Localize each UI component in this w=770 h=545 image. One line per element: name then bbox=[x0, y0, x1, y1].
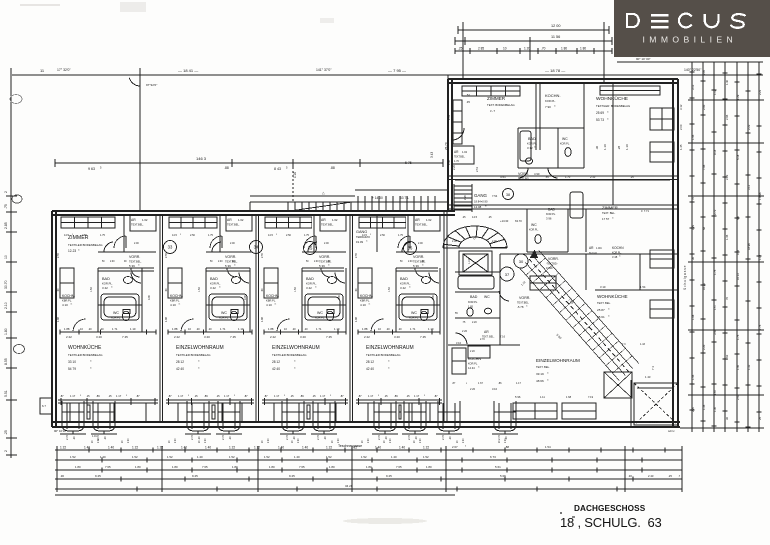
svg-text:1 17: 1 17 bbox=[178, 394, 184, 398]
svg-text:70: 70 bbox=[725, 297, 729, 300]
svg-text:1.80: 1.80 bbox=[4, 328, 8, 335]
svg-text:7 65: 7 65 bbox=[202, 465, 208, 469]
svg-text:.20: .20 bbox=[398, 327, 402, 331]
svg-text:KOR.PL.: KOR.PL. bbox=[102, 282, 113, 286]
svg-text:KOR.PL.: KOR.PL. bbox=[527, 142, 538, 146]
svg-text:5 39: 5 39 bbox=[413, 264, 419, 268]
svg-text:1 80: 1 80 bbox=[366, 465, 372, 469]
svg-text:2.55: 2.55 bbox=[165, 253, 168, 258]
svg-text:1 52: 1 52 bbox=[361, 455, 367, 459]
svg-text:58: 58 bbox=[702, 227, 706, 230]
svg-text:BAD: BAD bbox=[306, 277, 314, 281]
svg-text:.87: .87 bbox=[136, 394, 140, 398]
svg-text:1 40: 1 40 bbox=[375, 446, 381, 450]
svg-text:.20: .20 bbox=[72, 436, 76, 440]
svg-text:AR: AR bbox=[227, 218, 232, 222]
svg-text:.20: .20 bbox=[386, 327, 390, 331]
svg-text:1.43: 1.43 bbox=[640, 343, 645, 346]
svg-text:VORR.: VORR. bbox=[319, 255, 330, 259]
svg-text:2.00: 2.00 bbox=[314, 261, 319, 263]
svg-text:9.14: 9.14 bbox=[736, 249, 740, 255]
svg-text:EINZELWOHNRAUM: EINZELWOHNRAUM bbox=[536, 358, 580, 363]
svg-text:TEXT.BEL.: TEXT.BEL. bbox=[415, 223, 428, 227]
svg-text:.15: .15 bbox=[108, 394, 112, 398]
svg-text:1 40: 1 40 bbox=[302, 446, 308, 450]
svg-text:.70: .70 bbox=[541, 47, 546, 51]
svg-text:TEXTILER BODENBELAG: TEXTILER BODENBELAG bbox=[366, 353, 401, 357]
svg-text:2.00: 2.00 bbox=[418, 242, 423, 245]
svg-text:TEXT.BEL.: TEXT.BEL. bbox=[131, 223, 144, 227]
svg-text:2.70: 2.70 bbox=[190, 434, 194, 440]
svg-text:1.75: 1.75 bbox=[736, 334, 740, 340]
svg-text:25 69: 25 69 bbox=[596, 111, 604, 115]
svg-text:5.18: 5.18 bbox=[736, 154, 740, 160]
svg-text:7.19: 7.19 bbox=[588, 395, 594, 399]
svg-text:BAD: BAD bbox=[102, 277, 110, 281]
svg-text:3 20: 3 20 bbox=[300, 335, 306, 339]
svg-text:4 10: 4 10 bbox=[266, 303, 272, 307]
svg-text:1 40: 1 40 bbox=[391, 455, 397, 459]
svg-text:1.88: 1.88 bbox=[57, 317, 60, 322]
svg-text:+13.30: +13.30 bbox=[500, 219, 509, 223]
svg-text:.15: .15 bbox=[312, 394, 316, 398]
svg-text:.15: .15 bbox=[216, 394, 220, 398]
svg-text:8.55: 8.55 bbox=[4, 358, 8, 365]
svg-text:1.17: 1.17 bbox=[516, 382, 521, 385]
svg-text:2.00: 2.00 bbox=[324, 242, 329, 245]
svg-text:1 40: 1 40 bbox=[205, 446, 211, 450]
svg-text:18.84×0.90: 18.84×0.90 bbox=[474, 200, 488, 204]
svg-text:.90: .90 bbox=[261, 288, 264, 292]
svg-text:.20: .20 bbox=[292, 436, 296, 440]
svg-text:WC: WC bbox=[317, 311, 323, 315]
svg-text:97°32'0'': 97°32'0'' bbox=[146, 83, 158, 87]
svg-text:2.20: 2.20 bbox=[472, 321, 477, 324]
svg-text:BAD: BAD bbox=[470, 295, 478, 299]
svg-text:— 7 95 —: — 7 95 — bbox=[388, 68, 406, 73]
svg-text:1.45: 1.45 bbox=[736, 364, 740, 370]
svg-text:1 67: 1 67 bbox=[478, 382, 483, 385]
svg-text:2.00: 2.00 bbox=[408, 261, 413, 263]
svg-text:WC: WC bbox=[113, 311, 119, 315]
svg-text:.25: .25 bbox=[630, 175, 634, 179]
svg-text:.86: .86 bbox=[96, 394, 100, 398]
svg-text:2.70: 2.70 bbox=[441, 434, 445, 440]
svg-text:1 22: 1 22 bbox=[254, 446, 260, 450]
svg-text:1 40: 1 40 bbox=[84, 446, 90, 450]
svg-text:AR: AR bbox=[321, 218, 326, 222]
svg-text:.86: .86 bbox=[300, 394, 304, 398]
svg-text:.25: .25 bbox=[488, 216, 492, 219]
svg-text:3 42: 3 42 bbox=[102, 286, 108, 290]
svg-text:1.67: 1.67 bbox=[713, 389, 717, 395]
svg-text:.30: .30 bbox=[628, 474, 632, 478]
svg-text:2: 2 bbox=[4, 450, 8, 452]
svg-text:10.23: 10.23 bbox=[702, 283, 706, 290]
svg-text:33 10: 33 10 bbox=[68, 360, 76, 364]
svg-text:.86: .86 bbox=[204, 394, 208, 398]
svg-text:18 , SCHULG. 63: 18 , SCHULG. 63 bbox=[560, 515, 662, 530]
svg-text:1 22: 1 22 bbox=[423, 446, 429, 450]
svg-text:1 40: 1 40 bbox=[181, 446, 187, 450]
svg-text:30: 30 bbox=[691, 257, 695, 260]
svg-text:4 10: 4 10 bbox=[170, 303, 176, 307]
svg-text:KOR.PL.: KOR.PL. bbox=[529, 229, 539, 232]
svg-text:2.55: 2.55 bbox=[261, 253, 264, 258]
svg-text:3 43: 3 43 bbox=[430, 152, 434, 158]
svg-text:7 45: 7 45 bbox=[326, 335, 332, 339]
svg-text:wrtr'ur: wrtr'ur bbox=[668, 430, 675, 433]
svg-text:BAD: BAD bbox=[210, 277, 218, 281]
svg-text:.25: .25 bbox=[4, 430, 8, 435]
svg-text:TEXT. BEL.: TEXT. BEL. bbox=[597, 301, 611, 305]
svg-text:.15: .15 bbox=[194, 394, 198, 398]
svg-text:1.50: 1.50 bbox=[198, 287, 201, 292]
svg-text:BAD: BAD bbox=[548, 208, 556, 212]
svg-text:6.7: 6.7 bbox=[42, 404, 46, 408]
svg-text:1 40: 1 40 bbox=[108, 446, 114, 450]
svg-text:2.10: 2.10 bbox=[4, 302, 8, 309]
svg-text:1 22: 1 22 bbox=[132, 446, 138, 450]
svg-text:1 71: 1 71 bbox=[316, 327, 322, 331]
svg-text:2.20: 2.20 bbox=[452, 164, 456, 170]
svg-text:42 40: 42 40 bbox=[272, 367, 280, 371]
svg-text:AR: AR bbox=[589, 246, 594, 250]
svg-text:1.62: 1.62 bbox=[332, 218, 338, 222]
svg-text:5: 5 bbox=[276, 234, 277, 236]
svg-text:3.12: 3.12 bbox=[747, 184, 751, 190]
svg-text:2.00: 2.00 bbox=[230, 242, 235, 245]
svg-text:1 88: 1 88 bbox=[362, 327, 368, 331]
svg-text:AR: AR bbox=[415, 218, 420, 222]
svg-text:1.88: 1.88 bbox=[261, 317, 264, 322]
svg-text:2.23: 2.23 bbox=[747, 124, 751, 130]
svg-text:TEXT.BEL.: TEXT.BEL. bbox=[321, 223, 334, 227]
svg-text:KOCHN.: KOCHN. bbox=[266, 294, 279, 298]
svg-text:2.70: 2.70 bbox=[221, 434, 225, 440]
svg-text:1.45: 1.45 bbox=[691, 134, 695, 140]
svg-text:1 88: 1 88 bbox=[268, 327, 274, 331]
svg-text:+ 14.30: + 14.30 bbox=[372, 196, 383, 200]
svg-text:1 52: 1 52 bbox=[167, 455, 173, 459]
svg-text:42 40: 42 40 bbox=[176, 367, 184, 371]
svg-text:2.20: 2.20 bbox=[420, 438, 422, 443]
svg-text:4.90: 4.90 bbox=[432, 295, 435, 300]
svg-text:1 22: 1 22 bbox=[326, 446, 332, 450]
svg-text:63 7 L: 63 7 L bbox=[400, 196, 409, 200]
svg-text:140° 22'50'': 140° 22'50'' bbox=[684, 68, 702, 72]
svg-text:4.90: 4.90 bbox=[148, 295, 151, 300]
svg-text:30: 30 bbox=[519, 259, 524, 264]
svg-text:2.00: 2.00 bbox=[679, 124, 683, 130]
svg-text:7.95: 7.95 bbox=[702, 164, 706, 170]
svg-text:.88: .88 bbox=[505, 445, 509, 449]
svg-text:1 54: 1 54 bbox=[640, 285, 646, 289]
svg-text:¼ 7: ¼ 7 bbox=[490, 109, 495, 113]
svg-text:1 17: 1 17 bbox=[116, 394, 122, 398]
svg-text:1.11: 1.11 bbox=[540, 395, 545, 399]
svg-text:2.00: 2.00 bbox=[134, 242, 139, 245]
svg-text:2.20: 2.20 bbox=[338, 438, 340, 443]
svg-text:2.55: 2.55 bbox=[57, 253, 60, 258]
svg-text:12 00: 12 00 bbox=[551, 24, 561, 28]
svg-text:2.20: 2.20 bbox=[691, 406, 695, 412]
svg-text:KOCHN.: KOCHN. bbox=[360, 294, 373, 298]
svg-text:2.00: 2.00 bbox=[452, 240, 457, 243]
svg-text:VORR.: VORR. bbox=[413, 255, 424, 259]
svg-text:1.50: 1.50 bbox=[294, 287, 297, 292]
svg-text:1 88: 1 88 bbox=[172, 327, 178, 331]
svg-text:.87: .87 bbox=[244, 394, 248, 398]
svg-text:146 3: 146 3 bbox=[196, 156, 207, 161]
svg-text:1 10: 1 10 bbox=[130, 327, 136, 331]
svg-text:1 80: 1 80 bbox=[580, 47, 586, 51]
svg-text:3 42: 3 42 bbox=[306, 286, 312, 290]
svg-text:2.51: 2.51 bbox=[475, 166, 479, 172]
svg-text:KBR.PL.: KBR.PL. bbox=[266, 299, 276, 303]
svg-text:KBR.PL.: KBR.PL. bbox=[170, 299, 180, 303]
svg-text:1.35: 1.35 bbox=[702, 404, 706, 410]
svg-text:7.54: 7.54 bbox=[492, 194, 498, 198]
svg-text:9 25: 9 25 bbox=[289, 474, 295, 478]
svg-text:.90: .90 bbox=[165, 288, 168, 292]
svg-text:KOCHN.: KOCHN. bbox=[545, 93, 561, 98]
svg-text:1.45: 1.45 bbox=[448, 160, 451, 165]
svg-text:.25: .25 bbox=[458, 47, 463, 51]
svg-text:7.16: 7.16 bbox=[500, 335, 506, 339]
svg-text:25 87: 25 87 bbox=[597, 308, 605, 312]
svg-text:3 20: 3 20 bbox=[204, 335, 210, 339]
svg-text:.88: .88 bbox=[330, 166, 335, 170]
svg-text:2 20: 2 20 bbox=[470, 387, 476, 391]
svg-text:.87: .87 bbox=[168, 394, 172, 398]
svg-text:1 52: 1 52 bbox=[326, 455, 332, 459]
svg-text:1 20: 1 20 bbox=[524, 47, 530, 51]
svg-text:2.20: 2.20 bbox=[390, 438, 392, 443]
svg-text:7 3: 7 3 bbox=[651, 366, 655, 370]
svg-text:.30: .30 bbox=[60, 474, 64, 478]
svg-text:1 80: 1 80 bbox=[75, 465, 81, 469]
svg-text:4.90: 4.90 bbox=[338, 295, 341, 300]
svg-text:1 40: 1 40 bbox=[399, 446, 405, 450]
svg-text:.88: .88 bbox=[224, 166, 229, 170]
svg-text:1 22: 1 22 bbox=[157, 446, 163, 450]
svg-text:3.12: 3.12 bbox=[679, 104, 683, 110]
svg-text:30.70: 30.70 bbox=[4, 280, 8, 289]
svg-text:5 06: 5 06 bbox=[500, 474, 506, 478]
svg-text:S c h u l g a s s e: S c h u l g a s s e bbox=[683, 265, 687, 290]
svg-text:1 68: 1 68 bbox=[566, 395, 572, 399]
svg-text:KOCHN: KOCHN bbox=[612, 246, 624, 250]
svg-text:14.34: 14.34 bbox=[468, 366, 475, 370]
svg-text:AR: AR bbox=[454, 150, 459, 154]
svg-text:1 43: 1 43 bbox=[645, 375, 651, 379]
svg-text:90° 10' 00'': 90° 10' 00'' bbox=[636, 57, 651, 61]
svg-text:1.50: 1.50 bbox=[90, 287, 93, 292]
svg-text:1.88: 1.88 bbox=[355, 317, 358, 322]
svg-text:EINZELWOHNRAUM: EINZELWOHNRAUM bbox=[272, 345, 320, 351]
svg-text:2.20: 2.20 bbox=[175, 438, 177, 443]
svg-text:TEXT. BEL.: TEXT. BEL. bbox=[602, 211, 616, 215]
svg-text:9 25: 9 25 bbox=[192, 474, 198, 478]
svg-text:2.70: 2.70 bbox=[377, 434, 381, 440]
svg-text:1 71: 1 71 bbox=[112, 327, 118, 331]
svg-text:1 52: 1 52 bbox=[264, 455, 270, 459]
svg-text:1 22: 1 22 bbox=[351, 446, 357, 450]
svg-text:1 80: 1 80 bbox=[269, 465, 275, 469]
svg-text:1 10: 1 10 bbox=[334, 327, 340, 331]
svg-text:2.20: 2.20 bbox=[464, 195, 467, 200]
svg-text:1.12: 1.12 bbox=[713, 89, 717, 95]
svg-text:5 61: 5 61 bbox=[495, 465, 501, 469]
svg-text:4.90: 4.90 bbox=[244, 295, 247, 300]
svg-text:4 10: 4 10 bbox=[360, 303, 366, 307]
svg-text:14.5: 14.5 bbox=[64, 234, 69, 237]
svg-text:7 65: 7 65 bbox=[105, 465, 111, 469]
svg-text:1.75: 1.75 bbox=[713, 269, 717, 275]
svg-text:7 45: 7 45 bbox=[122, 335, 128, 339]
svg-text:1.62: 1.62 bbox=[238, 218, 244, 222]
svg-text:3 20: 3 20 bbox=[96, 335, 102, 339]
svg-text:37: 37 bbox=[505, 272, 510, 277]
svg-text:1 80: 1 80 bbox=[232, 465, 238, 469]
svg-text:1 40: 1 40 bbox=[278, 446, 284, 450]
svg-text:VORR.: VORR. bbox=[548, 257, 559, 261]
svg-text:WOHNKÜCHE: WOHNKÜCHE bbox=[68, 344, 102, 351]
svg-text:1.88: 1.88 bbox=[165, 317, 168, 322]
svg-text:5 39: 5 39 bbox=[225, 264, 231, 268]
svg-text:1 22: 1 22 bbox=[229, 446, 235, 450]
svg-text:TEXT. BEL.: TEXT. BEL. bbox=[536, 365, 550, 369]
svg-text:.35: .35 bbox=[466, 100, 470, 104]
svg-text:TEXTILER BODENBELAG: TEXTILER BODENBELAG bbox=[272, 353, 307, 357]
svg-text:1.70: 1.70 bbox=[565, 175, 571, 179]
svg-text:1.62: 1.62 bbox=[426, 218, 432, 222]
svg-text:7 45: 7 45 bbox=[420, 335, 426, 339]
svg-text:2.70: 2.70 bbox=[480, 338, 485, 341]
svg-text:7 65: 7 65 bbox=[396, 465, 402, 469]
svg-text:WC: WC bbox=[221, 311, 227, 315]
svg-text:2.50: 2.50 bbox=[380, 234, 385, 237]
svg-text:WC: WC bbox=[411, 311, 417, 315]
svg-text:KOCHN.: KOCHN. bbox=[62, 294, 75, 298]
svg-text:1 17: 1 17 bbox=[414, 394, 420, 398]
svg-text:28 12: 28 12 bbox=[366, 360, 374, 364]
svg-text:VORR.: VORR. bbox=[225, 255, 236, 259]
svg-text:1.01: 1.01 bbox=[92, 435, 97, 438]
svg-text:9 25: 9 25 bbox=[386, 474, 392, 478]
svg-text:1.08: 1.08 bbox=[691, 314, 695, 320]
svg-text:6 73: 6 73 bbox=[490, 455, 496, 459]
svg-text:8 43: 8 43 bbox=[274, 167, 281, 171]
svg-text:TEXTILER BODENBELAG: TEXTILER BODENBELAG bbox=[68, 353, 103, 357]
svg-text:.20: .20 bbox=[448, 436, 452, 440]
svg-text:3 42: 3 42 bbox=[400, 286, 406, 290]
svg-text:3 20: 3 20 bbox=[394, 335, 400, 339]
svg-text:VORR.: VORR. bbox=[519, 296, 530, 300]
svg-text:3 48: 3 48 bbox=[612, 255, 618, 259]
svg-text:.86: .86 bbox=[498, 382, 502, 385]
svg-text:AR: AR bbox=[131, 218, 136, 222]
svg-text:1.45: 1.45 bbox=[691, 374, 695, 380]
svg-text:14.5: 14.5 bbox=[172, 234, 177, 237]
svg-text:2.95: 2.95 bbox=[702, 69, 706, 75]
svg-text:1.50: 1.50 bbox=[388, 287, 391, 292]
svg-text:BAD: BAD bbox=[528, 137, 536, 141]
svg-text:1 17: 1 17 bbox=[70, 394, 76, 398]
svg-text:.20: .20 bbox=[414, 436, 418, 440]
svg-text:2.20: 2.20 bbox=[128, 438, 130, 443]
svg-text:1.62: 1.62 bbox=[142, 218, 148, 222]
svg-text:70: 70 bbox=[691, 197, 695, 200]
svg-text:3 10: 3 10 bbox=[600, 285, 606, 289]
svg-text:3 10: 3 10 bbox=[456, 341, 462, 345]
svg-text:1 80: 1 80 bbox=[561, 47, 567, 51]
svg-text:36: 36 bbox=[408, 246, 413, 251]
svg-text:WOHNKÜCHE: WOHNKÜCHE bbox=[596, 95, 628, 102]
svg-text:KBR.PL.: KBR.PL. bbox=[360, 299, 370, 303]
svg-text:.87: .87 bbox=[434, 394, 438, 398]
svg-text:2.95: 2.95 bbox=[725, 114, 729, 120]
svg-text:5 39: 5 39 bbox=[319, 264, 325, 268]
svg-text:KOR.PL.: KOR.PL. bbox=[468, 301, 478, 304]
svg-text:2.50: 2.50 bbox=[82, 234, 87, 237]
svg-text:.20: .20 bbox=[323, 436, 327, 440]
svg-text:2 22: 2 22 bbox=[66, 335, 72, 339]
svg-text:.20: .20 bbox=[304, 327, 308, 331]
svg-text:1.29: 1.29 bbox=[736, 94, 740, 100]
svg-text:1 71: 1 71 bbox=[410, 327, 416, 331]
svg-text:IMMOBILIEN: IMMOBILIEN bbox=[643, 35, 738, 45]
svg-text:.15: .15 bbox=[406, 394, 410, 398]
svg-text:.20: .20 bbox=[384, 436, 388, 440]
svg-text:.20: .20 bbox=[100, 327, 104, 331]
svg-text:54 79: 54 79 bbox=[68, 367, 76, 371]
svg-text:1.45: 1.45 bbox=[679, 144, 683, 150]
svg-text:1 17: 1 17 bbox=[368, 394, 374, 398]
svg-text:.87: .87 bbox=[340, 394, 344, 398]
svg-text:11 56: 11 56 bbox=[551, 35, 560, 39]
svg-text:2.00: 2.00 bbox=[702, 104, 706, 110]
svg-text:TEXT.BEL.: TEXT.BEL. bbox=[129, 260, 142, 264]
svg-text:GANG: GANG bbox=[474, 193, 488, 198]
svg-text:42 40: 42 40 bbox=[366, 367, 374, 371]
svg-text:1.10: 1.10 bbox=[625, 144, 629, 150]
svg-text:2.70: 2.70 bbox=[285, 434, 289, 440]
svg-text:14.5: 14.5 bbox=[268, 234, 273, 237]
svg-text:2.20: 2.20 bbox=[505, 438, 507, 443]
svg-text:2.20: 2.20 bbox=[463, 438, 465, 443]
svg-text:-5.78: -5.78 bbox=[517, 305, 524, 309]
svg-text:VORR.: VORR. bbox=[129, 255, 140, 259]
svg-text:2: 2 bbox=[4, 191, 8, 193]
svg-text:2.51: 2.51 bbox=[448, 115, 451, 120]
svg-text:5 8: 5 8 bbox=[736, 216, 740, 220]
svg-text:39 19: 39 19 bbox=[536, 372, 544, 376]
svg-text:90° 10'12'': 90° 10'12'' bbox=[54, 429, 67, 433]
svg-text:30: 30 bbox=[725, 417, 729, 420]
svg-text:28 12: 28 12 bbox=[176, 360, 184, 364]
svg-text:2.50: 2.50 bbox=[190, 234, 195, 237]
svg-text:ZIMMER: ZIMMER bbox=[602, 205, 618, 210]
svg-text:KOCHN.: KOCHN. bbox=[170, 294, 183, 298]
svg-text:— 18 41 —: — 18 41 — bbox=[178, 68, 198, 73]
svg-text:7 90: 7 90 bbox=[545, 105, 551, 109]
svg-text:28 12: 28 12 bbox=[272, 360, 280, 364]
svg-text:3 96: 3 96 bbox=[546, 217, 552, 221]
svg-text:KOR.PL.: KOR.PL. bbox=[210, 282, 221, 286]
svg-text:12-23: 12-23 bbox=[68, 249, 76, 253]
